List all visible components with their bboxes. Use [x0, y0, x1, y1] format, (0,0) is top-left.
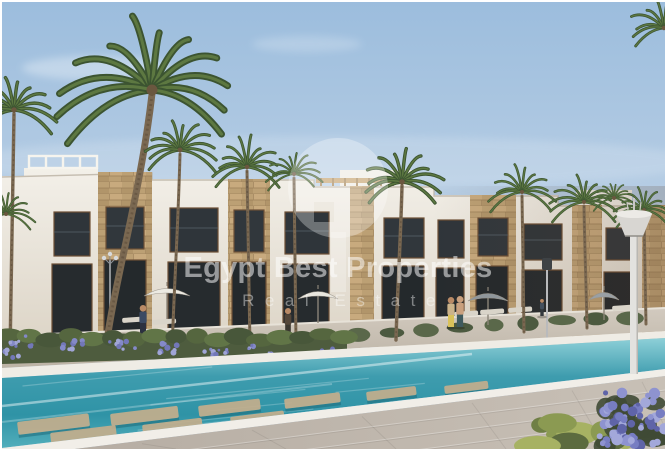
purple-flowers: [638, 425, 644, 431]
purple-flowers: [649, 388, 660, 399]
lavender-flowers: [174, 342, 180, 348]
lavender-flowers: [16, 354, 21, 359]
purple-flowers: [645, 393, 650, 398]
lavender-flowers: [28, 344, 32, 348]
purple-flowers: [609, 418, 617, 426]
purple-flowers: [627, 420, 635, 428]
lavender-flowers: [133, 346, 137, 350]
lavender-flowers: [250, 344, 253, 347]
purple-flowers: [603, 390, 608, 395]
lavender-flowers: [202, 349, 206, 353]
lavender-flowers: [60, 345, 66, 351]
lavender-flowers: [121, 348, 124, 351]
lavender-flowers: [24, 334, 27, 337]
green-bush: [538, 413, 577, 433]
lavender-flowers: [164, 345, 170, 351]
purple-flowers: [617, 388, 628, 399]
purple-flowers: [628, 406, 638, 416]
purple-flowers: [597, 433, 603, 439]
purple-flowers: [605, 442, 611, 448]
purple-flowers: [640, 397, 650, 407]
purple-flowers: [621, 404, 629, 412]
purple-flowers: [628, 437, 635, 444]
purple-flowers: [621, 416, 628, 423]
hedge-bush: [548, 315, 576, 325]
lavender-flowers: [108, 340, 111, 343]
lavender-flowers: [14, 345, 17, 348]
purple-flowers: [611, 434, 623, 446]
lavender-flowers: [157, 350, 162, 355]
lavender-flowers: [217, 349, 220, 352]
lavender-flowers: [67, 347, 71, 351]
purple-flowers: [656, 409, 665, 418]
lavender-flowers: [10, 355, 15, 360]
lavender-flowers: [124, 339, 130, 345]
lavender-flowers: [4, 347, 9, 352]
purple-flowers: [637, 413, 644, 420]
photo-area: Egypt Best Properties Real Estate: [2, 2, 665, 449]
purple-flowers: [636, 402, 640, 406]
purple-flowers: [617, 424, 627, 434]
lavender-flowers: [247, 347, 250, 350]
hedge-bush: [517, 316, 538, 331]
lavender-flowers: [17, 340, 20, 343]
hedge-bush: [380, 328, 404, 338]
lavender-flowers: [80, 342, 85, 347]
lavender-flowers: [172, 348, 176, 352]
lavender-flowers: [8, 341, 12, 345]
lavender-flowers: [225, 348, 228, 351]
hedge-bush: [413, 323, 439, 337]
scene-canvas: [2, 2, 665, 449]
cloud: [252, 36, 362, 52]
purple-flowers: [648, 414, 654, 420]
lavender-flowers: [223, 351, 227, 355]
lavender-flowers: [116, 344, 121, 349]
property-photo: Egypt Best Properties Real Estate: [0, 0, 668, 452]
lavender-flowers: [72, 338, 78, 344]
purple-flowers: [600, 442, 604, 446]
lavender-flowers: [159, 341, 165, 347]
purple-flowers: [649, 440, 657, 448]
purple-flowers: [608, 401, 618, 411]
lavender-flowers: [5, 352, 9, 356]
